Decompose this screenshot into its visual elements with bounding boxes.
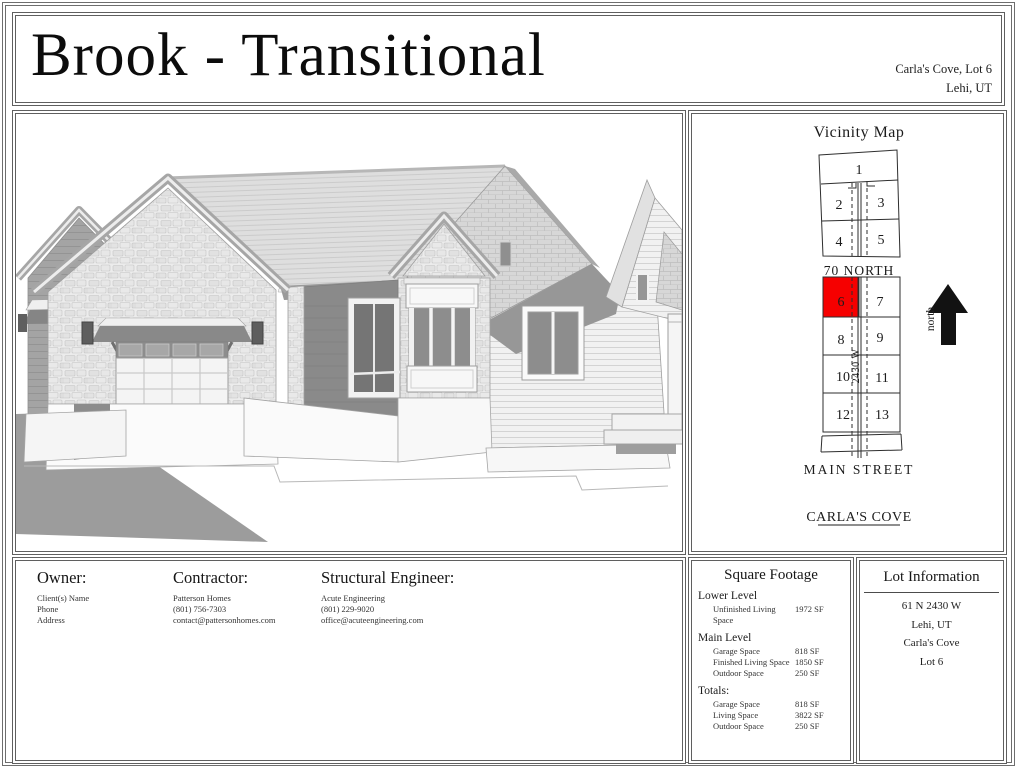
- lot-number: 4: [836, 235, 843, 250]
- sqft-label: Living Space: [713, 710, 795, 721]
- engineer-heading: Structural Engineer:: [321, 568, 454, 588]
- section-totals: Totals:: [698, 685, 853, 697]
- contractor-heading: Contractor:: [173, 568, 275, 588]
- lot-number: 5: [878, 233, 885, 248]
- owner-name: Client(s) Name: [37, 593, 89, 604]
- sqft-row: Garage Space 818 SF: [713, 646, 853, 657]
- lot-number-highlighted: 6: [838, 295, 845, 310]
- engineer-column: Structural Engineer: Acute Engineering (…: [321, 568, 454, 626]
- title-panel: Brook - Transitional Carla's Cove, Lot 6…: [12, 12, 1005, 106]
- sqft-row: Finished Living Space 1850 SF: [713, 657, 853, 668]
- sqft-value: 1850 SF: [795, 657, 839, 668]
- sqft-label: Outdoor Space: [713, 668, 795, 679]
- rendering-panel: [12, 110, 686, 555]
- bay-window: [404, 278, 480, 392]
- owner-column: Owner: Client(s) Name Phone Address: [37, 568, 89, 626]
- contractor-name: Patterson Homes: [173, 593, 275, 604]
- lot-number: 7: [877, 295, 884, 310]
- slit-window: [637, 274, 648, 301]
- sqft-label: Garage Space: [713, 699, 795, 710]
- left-foundation: [24, 410, 126, 462]
- lot-number: 10: [836, 370, 850, 385]
- vicinity-map: Vicinity Map 1 2 3 4 5 70 NORTH: [692, 114, 1003, 551]
- contractor-email: contact@pattersonhomes.com: [173, 615, 275, 626]
- chimney: [668, 314, 682, 430]
- lot-number: 13: [875, 408, 889, 423]
- sqft-label: Outdoor Space: [713, 721, 795, 732]
- contractor-column: Contractor: Patterson Homes (801) 756-73…: [173, 568, 275, 626]
- engineer-phone: (801) 229-9020: [321, 604, 454, 615]
- square-footage-title: Square Footage: [689, 567, 853, 584]
- sqft-row: Outdoor Space 250 SF: [713, 668, 853, 679]
- road-label-2430w: 2430 W: [851, 349, 862, 384]
- engineer-name: Acute Engineering: [321, 593, 454, 604]
- compass-label: north: [925, 307, 937, 332]
- lot-number: 1: [856, 163, 863, 178]
- contacts-panel: Owner: Client(s) Name Phone Address Cont…: [12, 557, 686, 764]
- center-foundation: [398, 398, 492, 462]
- sqft-value: 818 SF: [795, 646, 839, 657]
- garage-door: [116, 342, 228, 404]
- lot-info-title: Lot Information: [860, 569, 1003, 586]
- sqft-value: 3822 SF: [795, 710, 839, 721]
- lot-number: 3: [878, 196, 885, 211]
- sqft-value: 818 SF: [795, 699, 839, 710]
- street-label-main: MAIN STREET: [804, 462, 915, 477]
- lot-info-panel: Lot Information 61 N 2430 W Lehi, UT Car…: [856, 557, 1007, 764]
- sqft-row: Unfinished Living Space 1972 SF: [713, 604, 853, 626]
- lot-number: 11: [875, 371, 888, 386]
- garage-awning: [92, 326, 252, 342]
- square-footage-panel: Square Footage Lower Level Unfinished Li…: [688, 557, 854, 764]
- section-lower-level: Lower Level: [698, 590, 853, 602]
- contractor-phone: (801) 756-7303: [173, 604, 275, 615]
- right-window: [522, 306, 584, 380]
- subdivision-label: CARLA'S COVE: [806, 510, 911, 525]
- sqft-label: Unfinished Living Space: [713, 604, 795, 626]
- lot-number-line: Lot 6: [860, 653, 1003, 672]
- lot-address: 61 N 2430 W: [860, 597, 1003, 616]
- lot-city: Lehi, UT: [860, 616, 1003, 635]
- owner-phone: Phone: [37, 604, 89, 615]
- garage-lantern-right: [252, 322, 263, 344]
- project-name: Carla's Cove, Lot 6: [895, 60, 992, 79]
- sqft-row: Garage Space 818 SF: [713, 699, 853, 710]
- page-title: Brook - Transitional: [31, 21, 546, 91]
- section-main-level: Main Level: [698, 632, 853, 644]
- upper-lot-numbers: 1 2 3 4 5: [836, 163, 885, 250]
- right-gable: [606, 180, 682, 322]
- street-label-70-north: 70 NORTH: [824, 263, 895, 278]
- owner-address: Address: [37, 615, 89, 626]
- lot-number: 8: [838, 333, 845, 348]
- garage-lantern-left: [82, 322, 93, 344]
- vicinity-panel: Vicinity Map 1 2 3 4 5 70 NORTH: [688, 110, 1007, 555]
- owner-heading: Owner:: [37, 568, 89, 588]
- sqft-label: Garage Space: [713, 646, 795, 657]
- sqft-label: Finished Living Space: [713, 657, 795, 668]
- attic-vent: [500, 242, 511, 266]
- lot-info-divider: [864, 592, 999, 593]
- sqft-value: 1972 SF: [795, 604, 839, 626]
- lot-number: 2: [836, 198, 843, 213]
- sqft-row: Outdoor Space 250 SF: [713, 721, 853, 732]
- engineer-email: office@acuteengineering.com: [321, 615, 454, 626]
- house-rendering: [16, 114, 682, 551]
- sqft-value: 250 SF: [795, 721, 839, 732]
- lot-number: 12: [836, 408, 850, 423]
- architectural-title-sheet: { "title_block": { "plan_name": "Brook -…: [0, 0, 1017, 768]
- vicinity-map-title: Vicinity Map: [814, 124, 905, 141]
- lot-subdivision: Carla's Cove: [860, 634, 1003, 653]
- sqft-value: 250 SF: [795, 668, 839, 679]
- lot-number: 9: [877, 331, 884, 346]
- project-city: Lehi, UT: [895, 79, 992, 98]
- project-location-block: Carla's Cove, Lot 6 Lehi, UT: [895, 60, 992, 98]
- sqft-row: Living Space 3822 SF: [713, 710, 853, 721]
- porch-lantern: [18, 314, 27, 332]
